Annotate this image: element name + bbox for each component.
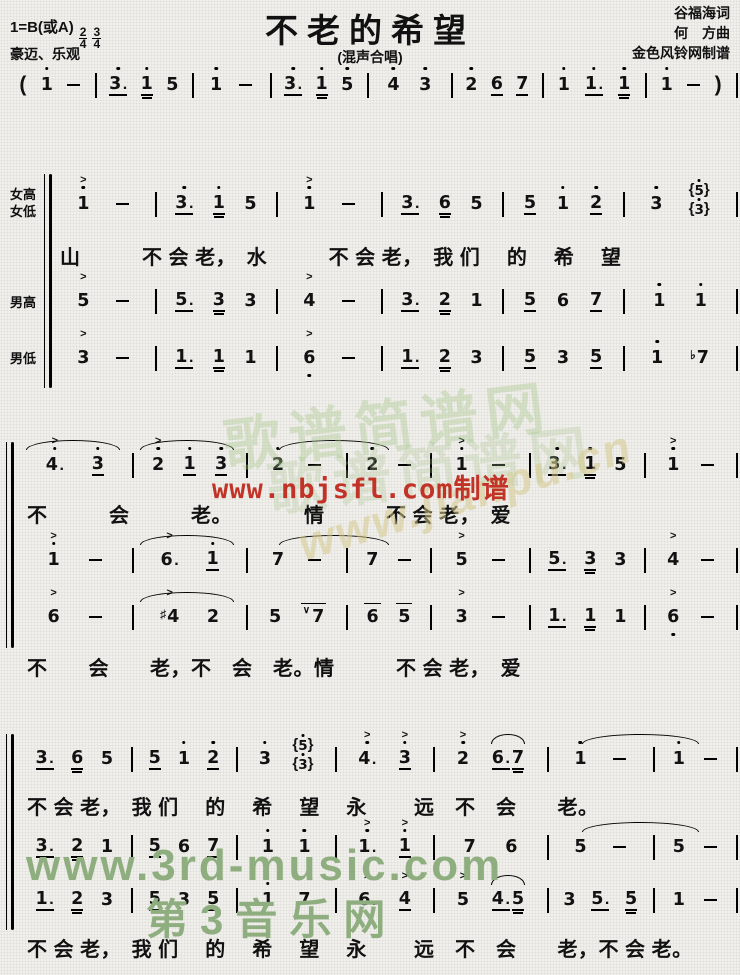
measure: 76 (435, 822, 549, 872)
note: 3 (470, 346, 482, 370)
accent-mark: > (306, 329, 312, 339)
note: >6 (303, 346, 315, 370)
note: 7 (207, 835, 219, 859)
dash (116, 289, 129, 313)
octave-dot-high (579, 741, 583, 745)
measure: 35.5 (549, 872, 655, 928)
lyrics-line: 山 不 会 老， 水 不 会 老， 我 们 的 希 望 (52, 241, 738, 270)
note: >1. (358, 835, 376, 859)
note: >6 (48, 605, 60, 629)
measure: 1 (655, 730, 738, 788)
augmentation-dot: . (505, 751, 509, 767)
accent-mark: > (80, 175, 86, 185)
note: 7 (366, 548, 378, 572)
dash (342, 289, 355, 313)
octave-dot-high (677, 741, 681, 745)
note: >♯4 (160, 605, 179, 629)
note: 4 (387, 73, 399, 97)
dash (492, 605, 505, 629)
octave-dot-high (45, 67, 49, 71)
barline (736, 289, 738, 314)
accent-mark: > (52, 436, 58, 446)
measure: 1.23 (19, 872, 133, 928)
augmentation-dot: . (605, 892, 609, 908)
measure: 2 (348, 436, 432, 494)
octave-dot-high (403, 741, 407, 745)
accent-mark: > (402, 730, 408, 740)
augmentation-dot: . (415, 196, 419, 212)
note: 6 (71, 747, 83, 771)
note: 1 (574, 747, 586, 771)
note: 3 (101, 888, 113, 912)
note: 1. (548, 605, 566, 629)
accent-mark: > (80, 272, 86, 282)
measure: 11 (238, 822, 336, 872)
slur-arc (140, 592, 234, 602)
slur-arc (140, 535, 234, 545)
system-1: 女高 女低 男高 男低 >13.15>13.655123{5}{3}山 不 会 … (6, 170, 738, 386)
note: >4. (358, 747, 376, 771)
note: 1 (618, 73, 630, 97)
note: 3 (614, 548, 626, 572)
measure: >54.5 (435, 872, 549, 928)
note: 5 (524, 289, 536, 313)
dash (89, 605, 102, 629)
measure: 512 (133, 730, 239, 788)
measure: >3 (432, 588, 531, 646)
note: >1 (48, 548, 60, 572)
note: >1 (77, 192, 89, 216)
octave-dot-high (561, 186, 565, 190)
note: 1 (262, 888, 274, 912)
measure: 267 (453, 62, 544, 108)
note: 1 (651, 346, 663, 370)
octave-dot-high (188, 447, 192, 451)
note: >1 (399, 835, 411, 859)
accent-mark: > (364, 730, 370, 740)
note: 3. (36, 747, 54, 771)
measure: >4 (646, 532, 738, 588)
note: 5 (149, 747, 161, 771)
note: 1 (316, 73, 328, 97)
intro-phrase-line: (13.1513.154326711.11) (6, 62, 738, 108)
octave-dot-high (655, 340, 659, 344)
barline (736, 835, 738, 860)
note: 6 (491, 73, 503, 97)
augmentation-dot: . (562, 552, 566, 568)
dash (704, 747, 717, 771)
dash (704, 835, 717, 859)
credits: 谷福海词 何 方曲 金色风铃网制谱 (632, 3, 730, 63)
measure: 3{5}{3} (238, 730, 336, 788)
note: 7 (464, 835, 476, 859)
octave-dot-high (217, 186, 221, 190)
note: 3. (284, 73, 302, 97)
note: 1. (36, 888, 54, 912)
sheet-music-page: { "header": { "key": "1=B(或A)", "meters"… (0, 0, 740, 975)
note: 6. (492, 747, 510, 771)
barline (736, 888, 738, 913)
note: 1 (470, 289, 482, 313)
octave-dot-high (145, 67, 149, 71)
measure: >26.7 (435, 730, 549, 788)
augmentation-dot: . (189, 350, 193, 366)
dash (342, 346, 355, 370)
note: 3. (401, 289, 419, 313)
note: 7 (298, 888, 310, 912)
octave-dot-high (345, 67, 349, 71)
accent-mark: > (166, 531, 172, 541)
dash (239, 73, 252, 97)
dash (613, 835, 626, 859)
note: 1 (557, 192, 569, 216)
dash (116, 192, 129, 216)
octave-dot-high (291, 67, 295, 71)
octave-dot-high (699, 283, 703, 287)
note: >3 (399, 747, 411, 771)
note: 3 (244, 289, 256, 313)
measure: 1) (647, 62, 738, 108)
note: 1 (558, 73, 570, 97)
measure: 2 (248, 436, 347, 494)
note: 7 (512, 747, 524, 771)
note: 1 (584, 453, 596, 477)
note: 5 (166, 73, 178, 97)
augmentation-dot: . (562, 457, 566, 473)
octave-dot-high (116, 67, 120, 71)
octave-dot-high (403, 829, 407, 833)
measure: 567 (504, 272, 625, 330)
accidental: ♯ (160, 608, 166, 620)
note: 2 (272, 453, 284, 477)
measure: >5 (432, 532, 531, 588)
chord: {5}{3} (689, 180, 710, 218)
accent-mark: > (50, 588, 56, 598)
accent-mark: > (670, 531, 676, 541)
song-title: 不老的希望 (0, 4, 740, 52)
note: 2 (207, 747, 219, 771)
note: 5. (548, 548, 566, 572)
measure: 1.23 (383, 330, 504, 386)
note: 3. (401, 192, 419, 216)
measure: >5 (52, 272, 157, 330)
system-3: 3.655123{5}{3}>4.>3>26.711不 会 老， 我 们 的 希… (6, 730, 738, 966)
note: 5 (524, 346, 536, 370)
note: >4 (399, 888, 411, 912)
accidental: ♭ (690, 349, 696, 361)
measure: 5∨7 (248, 588, 347, 646)
octave-dot-high (655, 186, 659, 190)
measure: 3.65 (383, 170, 504, 238)
note: 2 (71, 835, 83, 859)
augmentation-dot: . (59, 458, 63, 474)
note: 5. (591, 888, 609, 912)
note: 1 (695, 289, 707, 313)
note: 1 (244, 346, 256, 370)
measure: 3.21 (383, 272, 504, 330)
system-2: >4.3>21322>13.15>1不 会 老。 情 不 会 老， 爱>1>6.… (6, 436, 738, 686)
measure: 3.65 (19, 730, 133, 788)
octave-dot-high (214, 67, 218, 71)
octave-dot-low (671, 633, 675, 637)
measure: 1 (655, 872, 738, 928)
octave-dot-high (658, 283, 662, 287)
measure: >1 (278, 170, 383, 238)
measure: >6.1 (134, 532, 249, 588)
note: 1. (401, 346, 419, 370)
note: >6. (161, 548, 179, 572)
note: 4. (492, 888, 510, 912)
note: 3. (175, 192, 193, 216)
octave-dot-high (594, 186, 598, 190)
note: 6 (366, 605, 378, 629)
measure: >6 (19, 588, 134, 646)
measure: 1.11 (157, 330, 278, 386)
note: 1 (213, 346, 225, 370)
octave-dot-high (366, 741, 370, 745)
octave-dot-high (263, 741, 267, 745)
note: 1 (101, 835, 113, 859)
note: 1 (584, 605, 596, 629)
note: 5 (398, 605, 410, 629)
note: 3 (213, 289, 225, 313)
note: 1 (262, 835, 274, 859)
augmentation-dot: . (123, 77, 127, 93)
note: 1 (141, 73, 153, 97)
augmentation-dot: . (189, 196, 193, 212)
measure: >1 (646, 436, 738, 494)
voice-label-tenor: 男高 (10, 294, 44, 311)
note: >5 (457, 888, 469, 912)
measure: 5 (655, 822, 738, 872)
lyrics-line: 不 会 老。 情 不 会 老， 爱 (19, 499, 738, 528)
note: 2 (439, 289, 451, 313)
octave-dot-high (622, 67, 626, 71)
measure: 5.33 (157, 272, 278, 330)
note: >1 (455, 453, 467, 477)
barline (736, 453, 738, 478)
note: >5 (77, 289, 89, 313)
note: >4. (46, 453, 64, 477)
note: 2 (590, 192, 602, 216)
note: 3 (557, 346, 569, 370)
accent-mark: > (364, 818, 370, 828)
measure: 1 (549, 730, 655, 788)
note: 5 (574, 835, 586, 859)
accent-mark: > (306, 272, 312, 282)
measure: 43 (369, 62, 453, 108)
barline (736, 73, 738, 98)
accent-mark: > (402, 818, 408, 828)
measure: 5.33 (531, 532, 646, 588)
dash (308, 453, 321, 477)
note: >1 (303, 192, 315, 216)
note: 5. (175, 289, 193, 313)
note: >5 (455, 548, 467, 572)
note: >4 (303, 289, 315, 313)
augmentation-dot: . (372, 840, 376, 856)
octave-dot-high (276, 447, 280, 451)
octave-dot-high (211, 542, 215, 546)
measure: 11 (625, 272, 738, 330)
note: 2 (207, 605, 219, 629)
note: 5 (590, 346, 602, 370)
augmentation-dot: . (562, 609, 566, 625)
accent-mark: > (155, 436, 161, 446)
note: 3 (215, 453, 227, 477)
octave-dot-high (392, 67, 396, 71)
dash (492, 453, 505, 477)
measure: 567 (133, 822, 239, 872)
chord: {5}{3} (292, 735, 313, 773)
augmentation-dot: . (49, 751, 53, 767)
lyricist-credit: 谷福海词 (632, 3, 730, 23)
slur-arc (491, 875, 525, 885)
octave-dot-high (52, 542, 56, 546)
octave-dot-low (308, 374, 312, 378)
measure: (1 (6, 62, 97, 108)
octave-dot-high (82, 186, 86, 190)
note: 1 (183, 453, 195, 477)
dash (701, 605, 714, 629)
note: 1 (653, 289, 665, 313)
octave-dot-high (53, 447, 57, 451)
measure: >1.>1 (337, 822, 435, 872)
octave-dot-high (266, 882, 270, 886)
measure: 7 (348, 532, 432, 588)
measure: 3{5}{3} (625, 170, 738, 238)
note: 2 (465, 73, 477, 97)
note: >2 (457, 747, 469, 771)
accent-mark: > (80, 329, 86, 339)
note: 5 (470, 192, 482, 216)
lyrics-line: 不 会 老， 我 们 的 希 望 永 远 不 会 老，不 会 老。 (19, 933, 738, 962)
accent-mark: > (670, 588, 676, 598)
octave-dot-high (424, 67, 428, 71)
dash (398, 548, 411, 572)
note: 1 (206, 548, 218, 572)
note: 3 (259, 747, 271, 771)
note: 5 (269, 605, 281, 629)
note: 1 (178, 747, 190, 771)
note: 7 (590, 289, 602, 313)
octave-dot-high (212, 741, 216, 745)
dash (342, 192, 355, 216)
dash (89, 548, 102, 572)
note: 3. (548, 453, 566, 477)
note: 7 (516, 73, 528, 97)
octave-dot-high (461, 741, 465, 745)
octave-dot-high (562, 67, 566, 71)
note: >4 (667, 548, 679, 572)
augmentation-dot: . (505, 892, 509, 908)
note: ♭7 (690, 346, 709, 370)
measure: >213 (134, 436, 249, 494)
measure: 1 (194, 62, 272, 108)
accent-mark: > (460, 730, 466, 740)
note: 5 (207, 888, 219, 912)
augmentation-dot: . (49, 892, 53, 908)
octave-dot-high (671, 447, 675, 451)
measure: 3.21 (19, 822, 133, 872)
note: 5 (149, 888, 161, 912)
octave-dot-high (96, 447, 100, 451)
dash (67, 73, 80, 97)
accent-mark: > (460, 871, 466, 881)
measure: >4.3 (19, 436, 134, 494)
system-brace (6, 734, 15, 930)
note: 6 (439, 192, 451, 216)
augmentation-dot: . (372, 893, 376, 909)
measure: 17 (238, 872, 336, 928)
measure: 3.15 (272, 62, 369, 108)
note: 1 (210, 73, 222, 97)
system-brace (6, 442, 15, 648)
measure: 512 (504, 170, 625, 238)
octave-dot-high (665, 67, 669, 71)
measure: 3.15 (531, 436, 646, 494)
octave-dot-high (303, 829, 307, 833)
augmentation-dot: . (174, 553, 178, 569)
measure: 535 (504, 330, 625, 386)
augmentation-dot: . (372, 752, 376, 768)
accent-mark: > (50, 531, 56, 541)
dash (701, 548, 714, 572)
augmentation-dot: . (49, 839, 53, 855)
dash (492, 548, 505, 572)
lyrics-line: 不 会 老， 我 们 的 希 望 永 远 不 会 老。 (19, 791, 738, 820)
note: 3 (178, 888, 190, 912)
note: >2 (152, 453, 164, 477)
slur-arc (491, 734, 525, 744)
measure: 11.1 (544, 62, 648, 108)
measure: >6 (278, 330, 383, 386)
note: 3. (109, 73, 127, 97)
note: 5 (149, 835, 161, 859)
accent-mark: > (458, 531, 464, 541)
note: 1 (213, 192, 225, 216)
accent-mark: > (670, 436, 676, 446)
measure: 5 (549, 822, 655, 872)
dash (398, 453, 411, 477)
octave-dot-high (556, 447, 560, 451)
note: 2 (439, 346, 451, 370)
note: 5 (101, 747, 113, 771)
measure: 3.15 (157, 170, 278, 238)
engraver-credit: 金色风铃网制谱 (632, 43, 730, 63)
barline (736, 346, 738, 371)
measure: 1.11 (531, 588, 646, 646)
augmentation-dot: . (415, 350, 419, 366)
paren: ) (715, 73, 722, 97)
paren: ( (19, 73, 26, 97)
note: 3 (92, 453, 104, 477)
octave-dot-high (470, 67, 474, 71)
dash (613, 747, 626, 771)
octave-dot-high (219, 447, 223, 451)
dash (704, 888, 717, 912)
barline (736, 605, 738, 630)
breath-mark: ∨ (303, 606, 310, 616)
measure: >1 (19, 532, 134, 588)
octave-dot-high (266, 829, 270, 833)
accent-mark: > (167, 588, 173, 598)
measure: >3 (52, 330, 157, 386)
measure: >4 (278, 272, 383, 330)
measure: >6.>4 (337, 872, 435, 928)
note: >1 (667, 453, 679, 477)
note: >6 (667, 605, 679, 629)
